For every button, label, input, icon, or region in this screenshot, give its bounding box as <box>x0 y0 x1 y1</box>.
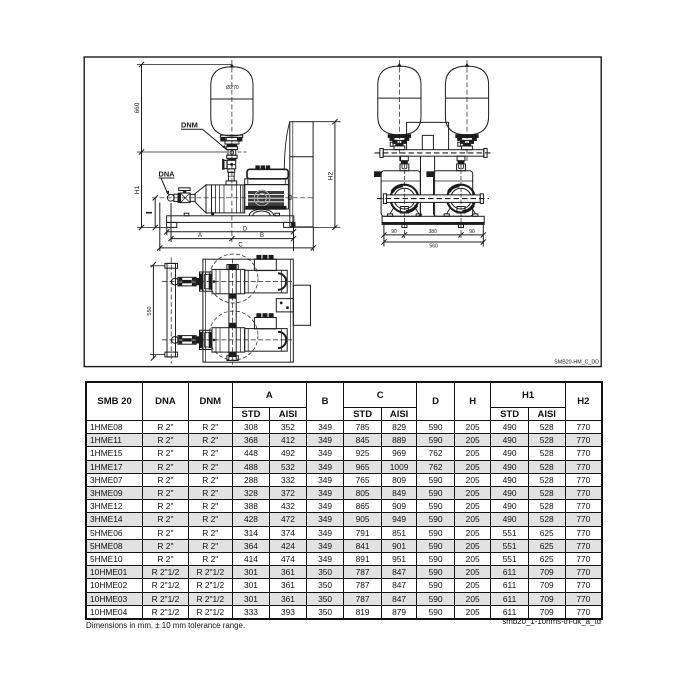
svg-text:90: 90 <box>469 229 475 235</box>
svg-text:550: 550 <box>147 306 153 315</box>
svg-text:90: 90 <box>391 229 397 235</box>
svg-text:SMB20-HM_C_DD: SMB20-HM_C_DD <box>554 360 599 366</box>
svg-text:C: C <box>238 243 243 249</box>
svg-text:D: D <box>243 226 248 232</box>
svg-text:DNA: DNA <box>159 170 176 179</box>
svg-text:Ø270: Ø270 <box>226 85 239 91</box>
svg-text:660: 660 <box>134 102 141 113</box>
svg-text:A: A <box>198 233 202 239</box>
svg-text:H2: H2 <box>327 171 334 180</box>
svg-text:DNM: DNM <box>181 121 198 130</box>
svg-text:380: 380 <box>429 229 438 235</box>
svg-text:560: 560 <box>429 244 438 250</box>
svg-text:B: B <box>260 233 264 239</box>
svg-text:H1: H1 <box>134 185 141 194</box>
